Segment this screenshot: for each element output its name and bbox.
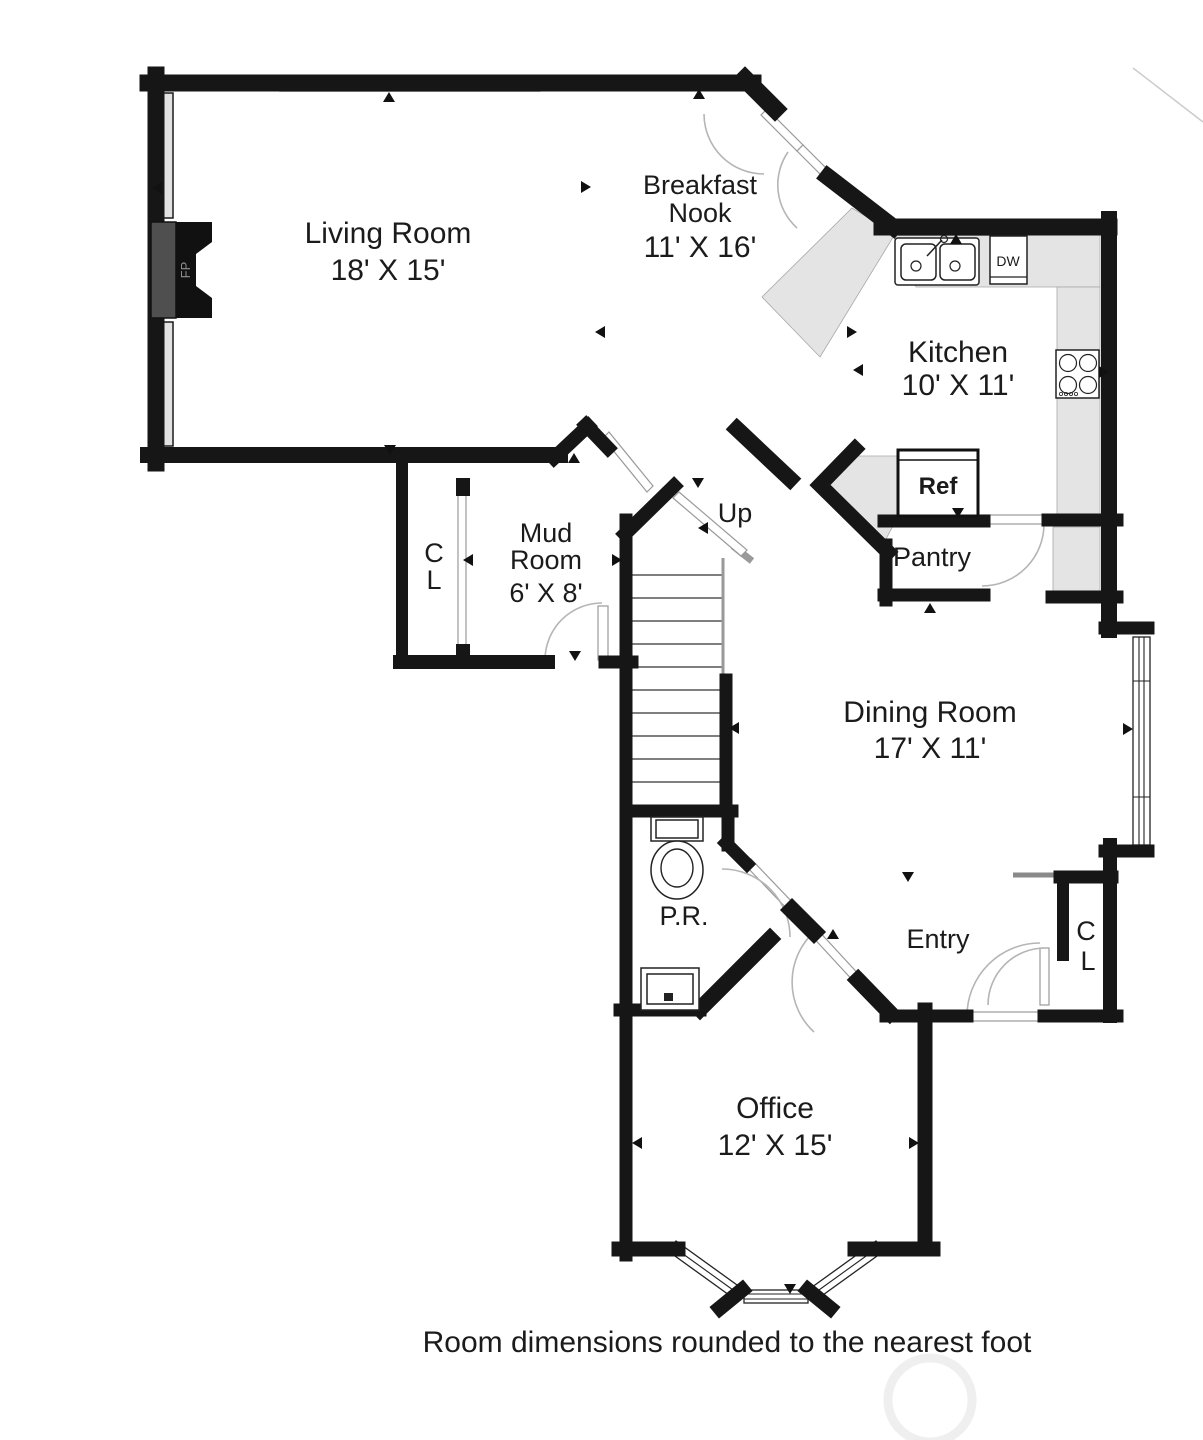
wall-diag-post [792,910,814,932]
dining-room-window [1133,637,1150,845]
living-room-label: Living Room [305,217,472,250]
wall-entry-diag-stub [858,980,890,1013]
wall-top-chamfer [745,79,775,109]
mud-closet-label-2: L [426,565,441,595]
pantry-label: Pantry [893,542,972,572]
floor-plan-page: Living Room 18' X 15' Breakfast Nook 11'… [0,0,1203,1440]
powder-room-door [722,859,795,937]
mud-room-dims: 6' X 8' [509,578,582,608]
powder-room-label: P.R. [659,901,708,931]
office-label: Office [736,1092,814,1125]
toilet [651,817,703,899]
breakfast-nook-label-2: Nook [668,198,732,228]
wall-bay-post-left [720,1290,742,1308]
pantry-door [982,515,1044,586]
mud-closet-label-1: C [424,538,444,568]
labels: Living Room 18' X 15' Breakfast Nook 11'… [178,170,1096,1359]
kitchen-dims: 10' X 11' [902,369,1015,402]
exterior-edge-line [1133,68,1203,122]
living-room-dims: 18' X 15' [331,254,446,287]
refrigerator-label: Ref [919,473,959,500]
powder-room-sink [641,968,699,1010]
plan-note: Room dimensions rounded to the nearest f… [423,1326,1032,1359]
entry-closet-label-2: L [1080,946,1095,976]
entry-closet-door [988,875,1057,1005]
fireplace-label: FP [178,262,193,279]
front-door [967,943,1042,1021]
dining-room-label: Dining Room [843,696,1016,729]
entry-label: Entry [906,924,970,954]
counter-passthrough [1053,527,1100,591]
kitchen-label: Kitchen [908,336,1008,369]
counter-right-strip [1057,287,1100,515]
wall-mud-diag [625,486,674,534]
kitchen-sink [895,236,979,286]
floor-plan-drawing: Living Room 18' X 15' Breakfast Nook 11'… [0,0,1203,1440]
wall-powder-right-stub [726,843,747,864]
mud-room-label-1: Mud [520,518,573,548]
wall-powder-diag [700,939,770,1009]
mud-room-label-2: Room [510,545,582,575]
entry-closet-label-1: C [1076,916,1096,946]
wall-landing-diag [737,429,790,479]
stairs-up-label: Up [718,498,753,528]
wall-gable-right [586,425,608,448]
dining-room-dims: 17' X 11' [874,732,987,765]
breakfast-nook-dims: 11' X 16' [644,231,757,264]
dishwasher-label: DW [996,253,1020,269]
watermark-circle [888,1358,972,1440]
stove [1056,350,1099,398]
office-dims: 12' X 15' [718,1129,833,1162]
mud-closet-sliding-door [456,478,470,662]
breakfast-nook-label-1: Breakfast [643,170,758,200]
